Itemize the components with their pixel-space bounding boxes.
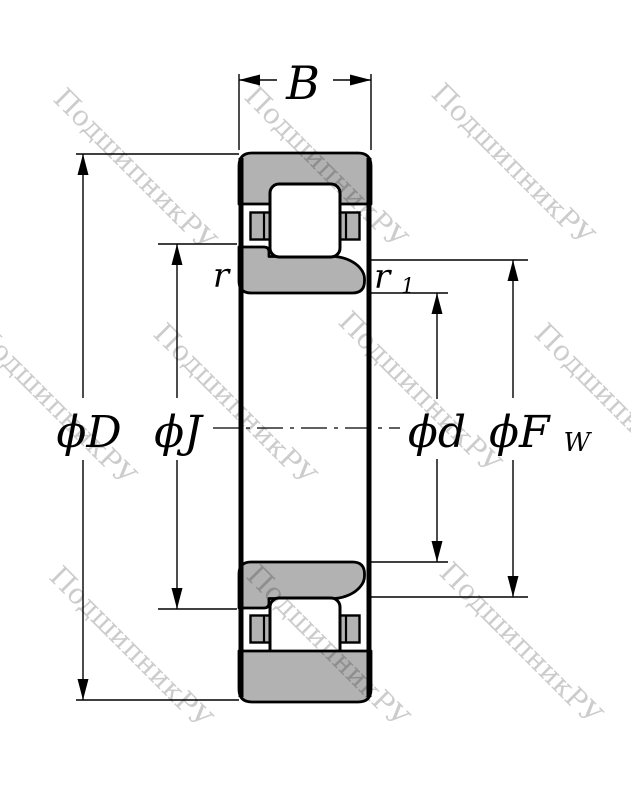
label-phi-J: ϕJ [154, 407, 204, 458]
arrowhead-D-top [78, 154, 89, 175]
label-r1-sub: 1 [401, 274, 414, 298]
roller-top [270, 184, 340, 257]
watermark-text: ПодшипникРУ [528, 317, 631, 493]
arrowhead-Fw-bottom [508, 576, 519, 597]
arrowhead-J-bottom [172, 588, 183, 609]
label-r1-main: r [374, 257, 392, 297]
arrowhead-D-bottom [78, 679, 89, 700]
arrowhead-d-top [432, 293, 443, 314]
dimension-phi-J: ϕJ [154, 244, 237, 609]
watermark-text: ПодшипникРУ [47, 82, 223, 258]
label-phi-Fw: ϕF W [489, 407, 593, 458]
arrowhead-Fw-top [508, 260, 519, 281]
dimension-phi-Fw: ϕF W [371, 260, 593, 597]
watermark-text: ПодшипникРУ [43, 560, 219, 736]
bearing-drawing: B ϕD ϕJ ϕd ϕF [0, 0, 631, 792]
watermark-text: ПодшипникРУ [0, 317, 143, 493]
watermark-text: ПодшипникРУ [147, 317, 323, 493]
label-B: B [285, 56, 320, 110]
arrowhead-J-top [172, 244, 183, 265]
label-r: r [213, 256, 231, 296]
label-phi-Fw-sub: W [564, 428, 593, 458]
watermark-text: ПодшипникРУ [433, 556, 609, 732]
label-r1: r 1 [374, 257, 414, 298]
arrowhead-d-bottom [432, 541, 443, 562]
cage-bar-top-left [251, 213, 271, 240]
cage-bar-bottom-left [251, 616, 271, 643]
arrowhead-B-right [350, 75, 371, 86]
watermark-text: ПодшипникРУ [425, 77, 601, 253]
